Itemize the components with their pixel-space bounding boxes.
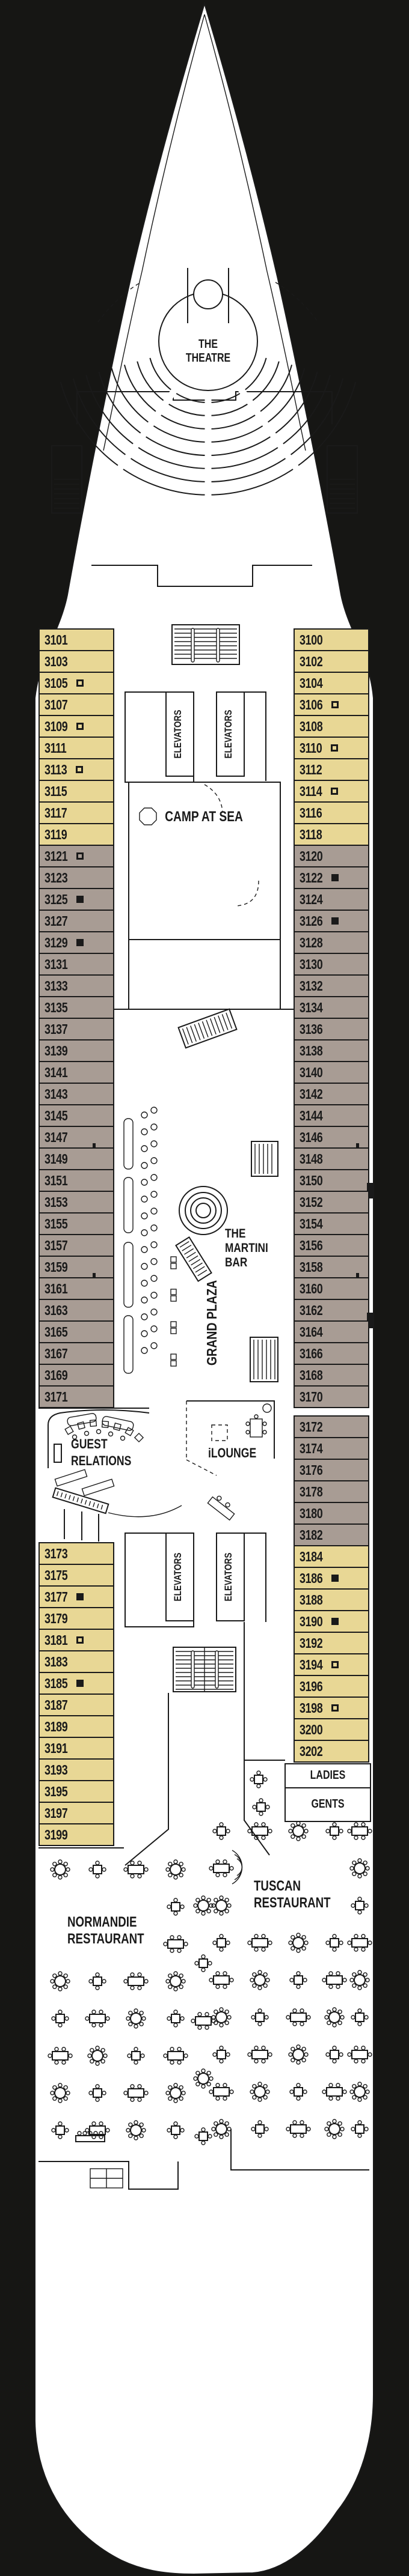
cabin-number: 3192 (300, 1636, 322, 1650)
cabin-number: 3162 (300, 1304, 322, 1317)
filled-square-icon (76, 896, 84, 903)
cabin-number: 3146 (300, 1131, 322, 1144)
cabin-number: 3143 (45, 1087, 67, 1101)
cabin-number: 3149 (45, 1152, 67, 1166)
open-square-icon (76, 852, 84, 860)
cabin-3111[interactable]: 3111 (38, 737, 114, 759)
cabin-3135[interactable]: 3135 (38, 996, 114, 1019)
cabin-number: 3136 (300, 1022, 322, 1036)
cabin-number: 3135 (45, 1001, 67, 1015)
open-square-icon (331, 1661, 339, 1668)
cabin-3163[interactable]: 3163 (38, 1299, 114, 1322)
cabin-3104[interactable]: 3104 (294, 672, 369, 694)
cabin-3133[interactable]: 3133 (38, 974, 114, 997)
cabin-3105[interactable]: 3105 (38, 672, 114, 694)
cabin-number: 3152 (300, 1195, 322, 1209)
cabin-3108[interactable]: 3108 (294, 715, 369, 738)
cabin-number: 3157 (45, 1239, 67, 1253)
cabin-3154[interactable]: 3154 (294, 1212, 369, 1235)
cabin-3189[interactable]: 3189 (38, 1715, 114, 1738)
cabin-number: 3125 (45, 893, 67, 907)
cabin-3101[interactable]: 3101 (38, 628, 114, 651)
cabin-3107[interactable]: 3107 (38, 693, 114, 716)
cabin-number: 3178 (300, 1485, 322, 1499)
cabin-3120[interactable]: 3120 (294, 845, 369, 867)
cabin-3192[interactable]: 3192 (294, 1632, 369, 1654)
cabin-number: 3130 (300, 958, 322, 971)
cabin-3184[interactable]: 3184 (294, 1545, 369, 1568)
martini-bar-label: THE MARTINI BAR (225, 1227, 268, 1270)
cabin-3199[interactable]: 3199 (38, 1823, 114, 1846)
cabin-3103[interactable]: 3103 (38, 650, 114, 673)
cabin-number: 3153 (45, 1195, 67, 1209)
cabin-number: 3106 (300, 698, 322, 712)
cabin-3190[interactable]: 3190 (294, 1610, 369, 1633)
cabin-3100[interactable]: 3100 (294, 628, 369, 651)
cabin-number: 3113 (45, 763, 67, 777)
cabin-number: 3191 (45, 1742, 67, 1755)
cabin-number: 3195 (45, 1785, 67, 1799)
cabin-3113[interactable]: 3113 (38, 758, 114, 781)
cabin-3187[interactable]: 3187 (38, 1694, 114, 1716)
cabin-number: 3122 (300, 871, 322, 885)
theatre-label: THE THEATRE (160, 338, 256, 365)
cabin-number: 3200 (300, 1723, 322, 1737)
cabin-3140[interactable]: 3140 (294, 1061, 369, 1084)
cabin-3138[interactable]: 3138 (294, 1039, 369, 1062)
cabin-number: 3150 (300, 1174, 322, 1188)
cabin-3152[interactable]: 3152 (294, 1191, 369, 1214)
cabin-number: 3172 (300, 1420, 322, 1434)
cabin-number: 3112 (300, 763, 322, 777)
cabin-3193[interactable]: 3193 (38, 1758, 114, 1781)
cabin-number: 3121 (45, 849, 67, 863)
cabin-3131[interactable]: 3131 (38, 953, 114, 976)
ilounge-label: iLOUNGE (208, 1445, 256, 1460)
cabin-3198[interactable]: 3198 (294, 1697, 369, 1719)
cabin-3179[interactable]: 3179 (38, 1607, 114, 1630)
cabin-number: 3193 (45, 1763, 67, 1777)
cabin-3183[interactable]: 3183 (38, 1650, 114, 1673)
cabin-3115[interactable]: 3115 (38, 780, 114, 803)
cabin-3144[interactable]: 3144 (294, 1104, 369, 1127)
cabin-3117[interactable]: 3117 (38, 801, 114, 824)
cabin-3171[interactable]: 3171 (38, 1385, 114, 1408)
open-square-icon (331, 701, 339, 708)
cabin-number: 3134 (300, 1001, 322, 1015)
cabin-3150[interactable]: 3150 (294, 1169, 369, 1192)
cabin-number: 3109 (45, 720, 67, 734)
cabin-number: 3131 (45, 958, 67, 971)
cabin-3169[interactable]: 3169 (38, 1364, 114, 1387)
cabin-number: 3108 (300, 720, 322, 734)
cabin-3161[interactable]: 3161 (38, 1277, 114, 1300)
cabin-3197[interactable]: 3197 (38, 1802, 114, 1824)
cabin-3109[interactable]: 3109 (38, 715, 114, 738)
cabin-number: 3133 (45, 979, 67, 993)
cabin-3106[interactable]: 3106 (294, 693, 369, 716)
cabin-3181[interactable]: 3181 (38, 1629, 114, 1651)
cabin-number: 3127 (45, 914, 67, 928)
cabin-number: 3190 (300, 1615, 322, 1629)
cabin-3157[interactable]: 3157 (38, 1234, 114, 1257)
open-square-icon (331, 788, 338, 795)
cabin-3116[interactable]: 3116 (294, 801, 369, 824)
cabin-number: 3118 (300, 828, 322, 842)
cabin-3167[interactable]: 3167 (38, 1342, 114, 1365)
cabin-3172[interactable]: 3172 (294, 1415, 369, 1438)
cabin-3153[interactable]: 3153 (38, 1191, 114, 1214)
cabin-3137[interactable]: 3137 (38, 1018, 114, 1040)
cabin-number: 3161 (45, 1282, 67, 1296)
cabin-3112[interactable]: 3112 (294, 758, 369, 781)
cabin-number: 3116 (300, 806, 322, 820)
cabin-number: 3111 (45, 741, 66, 755)
cabin-3162[interactable]: 3162 (294, 1299, 369, 1322)
cabin-number: 3123 (45, 871, 67, 885)
cabin-3168[interactable]: 3168 (294, 1364, 369, 1387)
cabin-number: 3202 (300, 1745, 322, 1758)
open-square-icon (76, 723, 84, 730)
cabin-number: 3144 (300, 1109, 322, 1123)
cabin-3114[interactable]: 3114 (294, 780, 369, 803)
cabin-number: 3120 (300, 849, 322, 863)
cabin-3134[interactable]: 3134 (294, 996, 369, 1019)
cabin-3164[interactable]: 3164 (294, 1320, 369, 1343)
cabin-number: 3100 (300, 633, 322, 647)
cabin-3174[interactable]: 3174 (294, 1437, 369, 1460)
cabin-3186[interactable]: 3186 (294, 1567, 369, 1590)
cabin-number: 3168 (300, 1368, 322, 1382)
guest-relations-label: GUEST RELATIONS (71, 1436, 131, 1469)
cabin-number: 3199 (45, 1828, 67, 1842)
cabin-3173[interactable]: 3173 (38, 1542, 114, 1565)
cabin-number: 3151 (45, 1174, 67, 1188)
normandie-restaurant-label: NORMANDIE RESTAURANT (67, 1914, 144, 1948)
cabin-3160[interactable]: 3160 (294, 1277, 369, 1300)
cabin-number: 3174 (300, 1442, 322, 1456)
cabin-number: 3129 (45, 936, 67, 950)
filled-square-icon (331, 1618, 339, 1625)
cabin-number: 3189 (45, 1720, 67, 1734)
ladies-label: LADIES (294, 1769, 362, 1782)
cabin-number: 3198 (300, 1701, 322, 1715)
cabin-number: 3107 (45, 698, 67, 712)
cabin-3125[interactable]: 3125 (38, 888, 114, 911)
open-square-icon (76, 679, 84, 687)
filled-square-icon (76, 939, 84, 946)
cabin-number: 3145 (45, 1109, 67, 1123)
cabin-number: 3126 (300, 914, 322, 928)
cabin-number: 3141 (45, 1066, 67, 1080)
filled-square-icon (76, 1680, 84, 1687)
elevators-label-upper-starboard: ELEVATORS (223, 700, 238, 768)
cabin-number: 3128 (300, 936, 322, 950)
cabin-3141[interactable]: 3141 (38, 1061, 114, 1084)
cabin-number: 3175 (45, 1569, 67, 1582)
cabin-number: 3147 (45, 1131, 67, 1144)
cabin-3122[interactable]: 3122 (294, 866, 369, 889)
cabin-3147[interactable]: 3147 (38, 1126, 114, 1149)
cabin-number: 3154 (300, 1217, 322, 1231)
deck-plan: 3101310331053107310931113113311531173119… (0, 0, 409, 2576)
cabin-3110[interactable]: 3110 (294, 737, 369, 759)
cabin-number: 3166 (300, 1347, 322, 1361)
cabin-number: 3177 (45, 1590, 67, 1604)
cabin-number: 3188 (300, 1593, 322, 1607)
cabin-3177[interactable]: 3177 (38, 1585, 114, 1608)
camp-at-sea-label: CAMP AT SEA (158, 809, 250, 825)
cabin-number: 3114 (300, 785, 322, 798)
cabin-number: 3148 (300, 1152, 322, 1166)
cabin-number: 3124 (300, 893, 322, 907)
cabin-3123[interactable]: 3123 (38, 866, 114, 889)
cabin-number: 3179 (45, 1612, 67, 1626)
cabin-number: 3139 (45, 1044, 67, 1058)
cabin-3180[interactable]: 3180 (294, 1502, 369, 1525)
cabin-number: 3102 (300, 655, 322, 669)
cabin-3195[interactable]: 3195 (38, 1780, 114, 1803)
cabin-number: 3183 (45, 1655, 67, 1669)
cabin-number: 3164 (300, 1325, 322, 1339)
cabin-number: 3197 (45, 1806, 67, 1820)
cabin-3128[interactable]: 3128 (294, 931, 369, 954)
cabin-3182[interactable]: 3182 (294, 1523, 369, 1546)
grand-plaza-label: GRAND PLAZA (204, 1274, 220, 1372)
cabin-number: 3186 (300, 1572, 322, 1585)
cabin-3132[interactable]: 3132 (294, 974, 369, 997)
cabin-3176[interactable]: 3176 (294, 1459, 369, 1481)
cabin-number: 3185 (45, 1677, 67, 1690)
cabin-3178[interactable]: 3178 (294, 1480, 369, 1503)
cabin-number: 3137 (45, 1022, 67, 1036)
cabin-number: 3165 (45, 1325, 67, 1339)
filled-square-icon (331, 874, 339, 881)
cabin-number: 3176 (300, 1463, 322, 1477)
cabin-number: 3110 (300, 741, 322, 755)
cabin-3130[interactable]: 3130 (294, 953, 369, 976)
cabin-3196[interactable]: 3196 (294, 1675, 369, 1698)
cabin-number: 3184 (300, 1550, 322, 1564)
cabin-number: 3180 (300, 1507, 322, 1520)
cabin-number: 3169 (45, 1368, 67, 1382)
cabin-3126[interactable]: 3126 (294, 910, 369, 932)
cabin-3127[interactable]: 3127 (38, 910, 114, 932)
cabin-number: 3196 (300, 1680, 322, 1694)
cabin-number: 3187 (45, 1698, 67, 1712)
cabin-number: 3156 (300, 1239, 322, 1253)
cabin-number: 3181 (45, 1633, 67, 1647)
cabin-3139[interactable]: 3139 (38, 1039, 114, 1062)
gents-label: GENTS (294, 1797, 362, 1811)
cabin-3202[interactable]: 3202 (294, 1740, 369, 1763)
open-square-icon (331, 744, 338, 752)
cabin-3151[interactable]: 3151 (38, 1169, 114, 1192)
cabin-3145[interactable]: 3145 (38, 1104, 114, 1127)
elevators-label-lower-port: ELEVATORS (172, 1543, 188, 1611)
cabin-3118[interactable]: 3118 (294, 823, 369, 846)
cabin-number: 3119 (45, 828, 67, 842)
cabin-3170[interactable]: 3170 (294, 1385, 369, 1408)
filled-square-icon (76, 1593, 84, 1600)
cabin-3166[interactable]: 3166 (294, 1342, 369, 1365)
cabin-3136[interactable]: 3136 (294, 1018, 369, 1040)
cabin-number: 3104 (300, 676, 322, 690)
tuscan-restaurant-label: TUSCAN RESTAURANT (254, 1878, 331, 1912)
cabin-number: 3117 (45, 806, 67, 820)
cabin-number: 3158 (300, 1260, 322, 1274)
cabin-3194[interactable]: 3194 (294, 1653, 369, 1676)
cabin-3129[interactable]: 3129 (38, 931, 114, 954)
cabin-number: 3142 (300, 1087, 322, 1101)
cabin-number: 3155 (45, 1217, 67, 1231)
open-square-icon (331, 1704, 339, 1712)
cabin-3102[interactable]: 3102 (294, 650, 369, 673)
cabin-number: 3132 (300, 979, 322, 993)
cabin-number: 3159 (45, 1260, 67, 1274)
cabin-3155[interactable]: 3155 (38, 1212, 114, 1235)
cabin-number: 3182 (300, 1528, 322, 1542)
cabin-3119[interactable]: 3119 (38, 823, 114, 846)
cabin-number: 3115 (45, 785, 67, 798)
cabin-number: 3194 (300, 1658, 322, 1672)
cabin-3165[interactable]: 3165 (38, 1320, 114, 1343)
elevators-label-lower-starboard: ELEVATORS (223, 1543, 238, 1611)
cabin-number: 3101 (45, 633, 67, 647)
open-square-icon (76, 766, 83, 773)
cabin-3149[interactable]: 3149 (38, 1147, 114, 1170)
filled-square-icon (331, 1575, 339, 1582)
cabin-number: 3103 (45, 655, 67, 669)
cabin-3121[interactable]: 3121 (38, 845, 114, 867)
cabin-number: 3138 (300, 1044, 322, 1058)
filled-square-icon (331, 917, 339, 925)
cabin-3185[interactable]: 3185 (38, 1672, 114, 1695)
cabin-number: 3160 (300, 1282, 322, 1296)
cabin-3156[interactable]: 3156 (294, 1234, 369, 1257)
cabin-number: 3163 (45, 1304, 67, 1317)
cabin-3148[interactable]: 3148 (294, 1147, 369, 1170)
cabin-3159[interactable]: 3159 (38, 1256, 114, 1278)
elevators-label-upper-port: ELEVATORS (172, 700, 188, 768)
cabin-number: 3170 (300, 1390, 322, 1404)
cabin-number: 3167 (45, 1347, 67, 1361)
cabin-number: 3105 (45, 676, 67, 690)
cabin-number: 3140 (300, 1066, 322, 1080)
cabin-number: 3171 (45, 1390, 67, 1404)
cabin-3124[interactable]: 3124 (294, 888, 369, 911)
cabin-3175[interactable]: 3175 (38, 1564, 114, 1587)
cabin-3142[interactable]: 3142 (294, 1083, 369, 1105)
cabin-number: 3173 (45, 1547, 67, 1561)
cabin-3188[interactable]: 3188 (294, 1588, 369, 1611)
cabin-3200[interactable]: 3200 (294, 1718, 369, 1741)
open-square-icon (76, 1636, 84, 1644)
cabin-3191[interactable]: 3191 (38, 1737, 114, 1760)
cabin-3143[interactable]: 3143 (38, 1083, 114, 1105)
